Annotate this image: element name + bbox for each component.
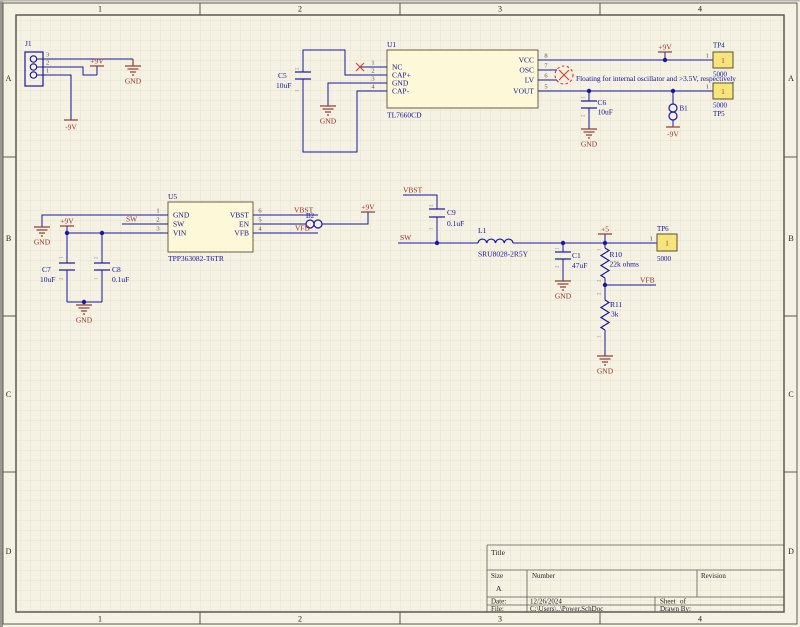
zone-row-a-right: A	[788, 74, 794, 83]
c9-value: 0.1uF	[447, 219, 464, 228]
u5-pin3-number: 3	[156, 226, 159, 233]
tp6-pad-label: 1	[665, 240, 669, 248]
plus9v-label: +9V	[361, 203, 375, 212]
c8-designator: C8	[112, 265, 121, 274]
power-port-plus9v-b2[interactable]: +9V	[361, 203, 375, 213]
tp5-designator: TP5	[713, 110, 725, 118]
zone-row-a-left: A	[6, 74, 12, 83]
plus5-label: +5	[601, 225, 609, 234]
u1-pin2-number: 2	[371, 68, 374, 75]
net-label-vbst-c9[interactable]: VBST	[403, 186, 423, 195]
window-edge-top	[0, 0, 800, 2]
tp6-pin-number: 1	[650, 236, 653, 243]
j1-pin1-number: 1	[46, 68, 49, 75]
u1-designator: U1	[387, 40, 396, 49]
minus9v-label: -9V	[65, 123, 77, 132]
power-port-plus9v-u5[interactable]: +9V	[60, 217, 74, 227]
u5-designator: U5	[168, 192, 177, 201]
gnd-label: GND	[320, 117, 337, 126]
tp4-value: 5000	[713, 71, 728, 79]
power-port-minus9v-b1[interactable]: -9V	[666, 127, 680, 139]
gnd-label: GND	[76, 316, 93, 325]
j1-pin2-number: 2	[46, 60, 49, 67]
component-u1[interactable]: U1 TL7660CD 1 2 3 4 NC CAP+ GND CAP- 8 7…	[361, 40, 560, 120]
u5-pin2-number: 2	[156, 217, 159, 224]
u1-pin5-number: 5	[544, 84, 547, 91]
tp4-designator: TP4	[713, 42, 725, 50]
net-label-sw-u5[interactable]: SW	[126, 215, 138, 224]
gnd-label: GND	[34, 238, 51, 247]
power-port-minus9v-j1[interactable]: -9V	[64, 120, 78, 132]
u5-pin-name-sw: SW	[173, 220, 185, 229]
u5-part-number: TPP363082-T6TR	[168, 254, 224, 263]
zone-col-3-top: 3	[498, 5, 502, 14]
b1-designator: B1	[680, 105, 689, 113]
u1-part-number: TL7660CD	[387, 111, 422, 120]
plus9v-label: +9V	[60, 217, 74, 226]
zone-col-4-bottom: 4	[698, 615, 702, 624]
minus9v-label: -9V	[667, 130, 679, 139]
u1-pin-name-osc: OSC	[519, 66, 534, 75]
zone-row-d-right: D	[788, 547, 794, 556]
l1-designator: L1	[478, 226, 487, 235]
b2-designator: B2	[306, 212, 315, 220]
j1-designator: J1	[25, 39, 32, 48]
c7-value: 10uF	[40, 275, 55, 284]
zone-col-2-top: 2	[298, 5, 302, 14]
u5-pin-name-gnd: GND	[173, 211, 190, 220]
titleblock-size-label: Size	[491, 572, 503, 580]
tp5-value: 5000	[713, 102, 728, 110]
u1-pin8-number: 8	[544, 53, 547, 60]
u5-pin-name-vfb: VFB	[234, 229, 249, 238]
u5-pin-name-vbst: VBST	[230, 211, 250, 220]
gnd-label: GND	[555, 292, 572, 301]
plus9v-label: +9V	[658, 43, 672, 52]
schematic-canvas: 1 2 3 4 1 2 3 4 A B C D A B C D Title Si…	[0, 0, 800, 627]
titleblock-file-label: File:	[491, 605, 504, 613]
u1-pin1-number: 1	[371, 60, 374, 67]
l1-part-number: SRU8028-2R5Y	[478, 250, 529, 259]
u1-pin-name-vout: VOUT	[513, 87, 534, 96]
tp6-value: 5000	[657, 255, 672, 263]
power-port-plus9v-j1[interactable]: +9V	[90, 57, 104, 67]
plus9v-label: +9V	[90, 57, 104, 66]
titleblock-number-label: Number	[532, 572, 556, 580]
zone-row-d-left: D	[6, 547, 12, 556]
tp5-pad-label: 1	[721, 88, 725, 96]
j1-pin3-number: 3	[46, 52, 49, 59]
c9-designator: C9	[447, 208, 456, 217]
component-u5[interactable]: U5 TPP363082-T6TR 1 2 3 GND SW VIN 6 5 4…	[150, 192, 270, 263]
u5-pin5-number: 5	[258, 217, 261, 224]
zone-col-2-bottom: 2	[298, 615, 302, 624]
tp4-pad-label: 1	[721, 57, 725, 65]
c6-designator: C6	[598, 98, 607, 107]
net-label-vfb-divider[interactable]: VFB	[640, 276, 655, 285]
c1-value: 47uF	[572, 261, 587, 270]
tp4-pin-number: 1	[706, 53, 709, 60]
titleblock-size-value: A	[496, 584, 502, 593]
c6-value: 10uF	[598, 108, 613, 117]
r10-designator: R10	[610, 250, 623, 259]
gnd-label: GND	[597, 367, 614, 376]
r10-value: 22k ohms	[610, 260, 639, 269]
c5-value: 10uF	[276, 81, 291, 90]
zone-row-b-right: B	[788, 234, 793, 243]
zone-row-c-left: C	[6, 390, 11, 399]
gnd-label: GND	[581, 140, 598, 149]
titleblock-revision-label: Revision	[701, 572, 726, 580]
net-label-vfb-u5[interactable]: VFB	[295, 224, 310, 233]
u5-pin-name-vin: VIN	[173, 229, 187, 238]
zone-row-b-left: B	[6, 234, 11, 243]
c1-designator: C1	[572, 251, 581, 260]
power-port-plus9v-tp4[interactable]: +9V	[658, 43, 672, 53]
gnd-label: GND	[125, 77, 142, 86]
titleblock-title-label: Title	[491, 548, 506, 557]
u5-pin1-number: 1	[156, 208, 159, 215]
zone-col-3-bottom: 3	[498, 615, 502, 624]
c7-designator: C7	[42, 265, 51, 274]
r11-value: 3k	[611, 310, 619, 319]
tp5-pin-number: 1	[706, 84, 709, 91]
zone-row-c-right: C	[788, 390, 793, 399]
u1-pin3-number: 3	[371, 76, 374, 83]
zone-col-4-top: 4	[698, 5, 702, 14]
titleblock-file-value: C:\Users\..\Power.SchDoc	[530, 605, 603, 613]
u1-pin-name-capminus: CAP-	[392, 87, 410, 96]
r11-designator: R11	[610, 300, 622, 309]
u5-pin-name-en: EN	[239, 220, 250, 229]
zone-col-1-top: 1	[98, 5, 102, 14]
c8-value: 0.1uF	[112, 275, 129, 284]
u1-pin-name-lv: LV	[525, 76, 535, 85]
zone-col-1-bottom: 1	[98, 615, 102, 624]
net-label-sw-output[interactable]: SW	[400, 233, 412, 242]
titleblock-drawnby-label: Drawn By:	[660, 605, 691, 613]
tp6-designator: TP6	[657, 225, 669, 233]
u1-pin-name-vcc: VCC	[519, 56, 534, 65]
c5-designator: C5	[278, 71, 287, 80]
